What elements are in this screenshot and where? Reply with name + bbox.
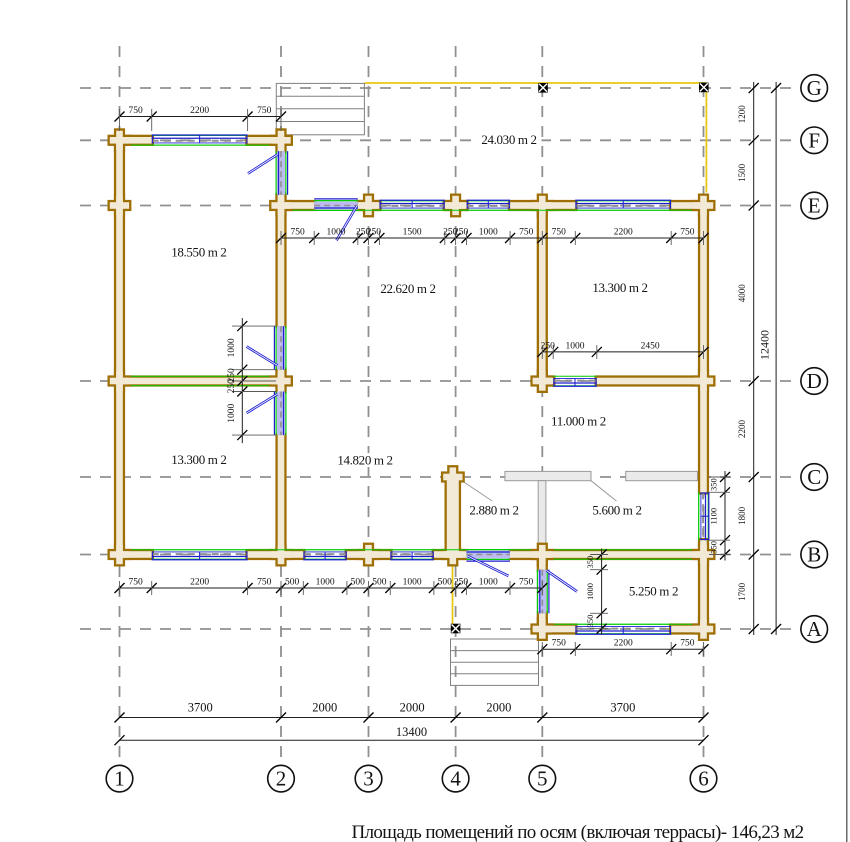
svg-text:Площадь помещений по осям (вкл: Площадь помещений по осям (включая терра… [351, 822, 803, 842]
svg-text:2: 2 [276, 767, 287, 791]
svg-text:3: 3 [363, 767, 374, 791]
svg-text:13400: 13400 [396, 725, 427, 739]
svg-text:2450: 2450 [641, 341, 660, 351]
svg-text:750: 750 [257, 578, 272, 588]
svg-text:5.600 m 2: 5.600 m 2 [592, 503, 641, 518]
svg-text:1100: 1100 [709, 508, 719, 525]
svg-text:4000: 4000 [737, 284, 747, 303]
svg-text:250: 250 [367, 228, 382, 238]
svg-text:12400: 12400 [757, 330, 771, 360]
svg-text:750: 750 [552, 228, 567, 238]
svg-text:5.250 m 2: 5.250 m 2 [629, 584, 678, 599]
svg-text:750: 750 [290, 228, 305, 238]
svg-text:350: 350 [585, 556, 595, 569]
svg-text:750: 750 [519, 578, 534, 588]
svg-text:1000: 1000 [403, 578, 422, 588]
svg-text:13.300 m 2: 13.300 m 2 [592, 280, 647, 295]
svg-text:2200: 2200 [614, 639, 633, 649]
svg-text:1000: 1000 [585, 583, 595, 600]
svg-text:500: 500 [372, 578, 387, 588]
svg-text:1000: 1000 [327, 228, 346, 238]
svg-text:1500: 1500 [737, 163, 747, 182]
svg-text:1500: 1500 [403, 228, 422, 238]
svg-text:2000: 2000 [486, 700, 511, 714]
svg-text:750: 750 [552, 639, 567, 649]
svg-text:11.000 m 2: 11.000 m 2 [551, 414, 606, 429]
svg-text:2000: 2000 [400, 700, 425, 714]
svg-text:B: B [807, 543, 821, 567]
svg-text:500: 500 [351, 578, 366, 588]
svg-text:750: 750 [257, 106, 272, 116]
svg-text:E: E [808, 194, 821, 218]
svg-text:250: 250 [454, 578, 469, 588]
svg-text:18.550 m 2: 18.550 m 2 [171, 245, 226, 260]
svg-text:4: 4 [450, 767, 461, 791]
svg-text:350: 350 [709, 541, 719, 554]
svg-text:750: 750 [128, 106, 143, 116]
svg-text:1000: 1000 [479, 228, 498, 238]
svg-text:2200: 2200 [190, 578, 209, 588]
svg-text:F: F [808, 128, 820, 152]
svg-text:1700: 1700 [737, 582, 747, 601]
svg-text:D: D [807, 369, 822, 393]
svg-text:24.030 m 2: 24.030 m 2 [481, 132, 536, 147]
svg-text:1: 1 [114, 767, 125, 791]
svg-text:2200: 2200 [190, 106, 209, 116]
svg-text:1000: 1000 [479, 578, 498, 588]
svg-text:750: 750 [680, 228, 695, 238]
svg-text:5: 5 [537, 767, 548, 791]
svg-text:14.820 m 2: 14.820 m 2 [337, 453, 392, 468]
svg-text:1000: 1000 [566, 341, 585, 351]
svg-text:250: 250 [227, 379, 237, 394]
svg-text:1000: 1000 [227, 338, 237, 357]
svg-text:3700: 3700 [188, 700, 213, 714]
svg-text:250: 250 [541, 341, 556, 351]
svg-text:250: 250 [454, 228, 469, 238]
svg-text:750: 750 [128, 578, 143, 588]
svg-text:2000: 2000 [312, 700, 337, 714]
svg-text:1000: 1000 [227, 404, 237, 423]
svg-text:2.880 m 2: 2.880 m 2 [469, 503, 518, 518]
svg-text:500: 500 [285, 578, 300, 588]
svg-text:750: 750 [519, 228, 534, 238]
svg-text:6: 6 [698, 767, 709, 791]
svg-text:C: C [807, 465, 821, 489]
svg-text:500: 500 [438, 578, 453, 588]
svg-text:22.620 m 2: 22.620 m 2 [380, 281, 435, 296]
svg-text:350: 350 [709, 478, 719, 491]
svg-text:1200: 1200 [737, 105, 747, 124]
svg-text:2200: 2200 [614, 228, 633, 238]
svg-text:750: 750 [680, 639, 695, 649]
svg-text:13.300 m 2: 13.300 m 2 [171, 452, 226, 467]
svg-text:G: G [807, 76, 822, 100]
svg-text:2200: 2200 [737, 420, 747, 439]
svg-text:3700: 3700 [610, 700, 635, 714]
svg-text:1000: 1000 [316, 578, 335, 588]
svg-text:A: A [807, 617, 823, 641]
svg-text:350: 350 [585, 615, 595, 628]
svg-text:1800: 1800 [737, 506, 747, 525]
